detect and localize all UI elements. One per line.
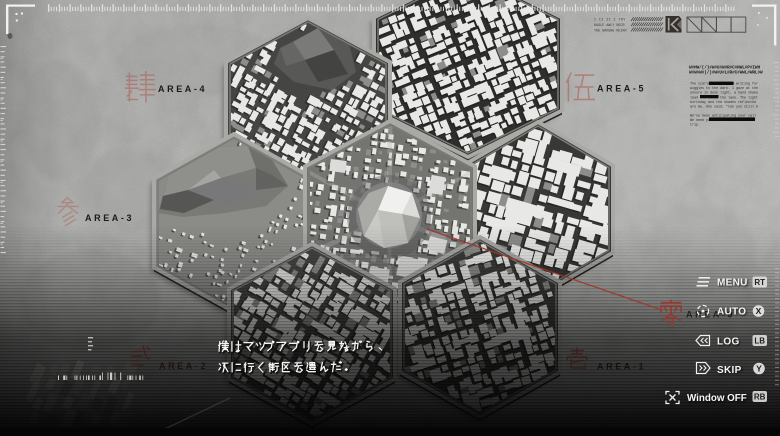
svg-text:MENU: MENU xyxy=(717,278,748,289)
svg-text:AREA-2: AREA-2 xyxy=(159,361,208,371)
svg-text:trip.: trip. xyxy=(690,122,700,127)
svg-text:wiggles to the dark. I gaze at: wiggles to the dark. I gaze at the xyxy=(690,86,758,91)
svg-text:X: X xyxy=(756,306,762,316)
svg-text:RB: RB xyxy=(754,393,766,402)
svg-text:birthday and the shades reflec: birthday and the shades reflected xyxy=(690,100,756,105)
svg-text:unsure in dusk light, a hand s: unsure in dusk light, a hand shake xyxy=(690,91,758,96)
svg-text:RT: RT xyxy=(754,278,765,287)
svg-text:AREA-5: AREA-5 xyxy=(597,84,646,94)
svg-text:W#W#W#(/)#W#U#L#R#C#WWL#WRL#W: W#W#W#(/)#W#U#L#R#C#WWL#WRL#W xyxy=(689,70,763,75)
svg-text:AREA-3: AREA-3 xyxy=(85,213,134,223)
svg-text:AREA-4: AREA-4 xyxy=(158,84,207,94)
svg-text:Window OFF: Window OFF xyxy=(687,393,747,404)
svg-text:LB: LB xyxy=(754,337,765,346)
svg-text:are me. She said, "Can you sti: are me. She said, "Can you still b xyxy=(690,105,758,110)
svg-text:AUTO: AUTO xyxy=(717,307,746,318)
svg-text:I II II I YNY: I II II I YNY xyxy=(594,19,626,23)
svg-text:Y: Y xyxy=(756,364,762,374)
svg-text:LOG: LOG xyxy=(717,337,740,348)
svg-text:SKIP: SKIP xyxy=(717,365,742,376)
svg-text:AREA-1: AREA-1 xyxy=(597,362,646,372)
svg-text:KAGLE AWLY NGCR: KAGLE AWLY NGCR xyxy=(594,24,625,28)
svg-text:THE GRKGNG REIKR: THE GRKGNG REIKR xyxy=(594,30,627,34)
